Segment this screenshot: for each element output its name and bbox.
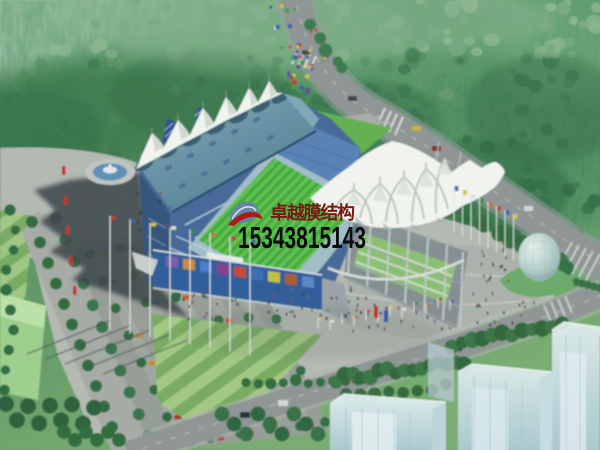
- svg-text:15343815143: 15343815143: [238, 220, 366, 255]
